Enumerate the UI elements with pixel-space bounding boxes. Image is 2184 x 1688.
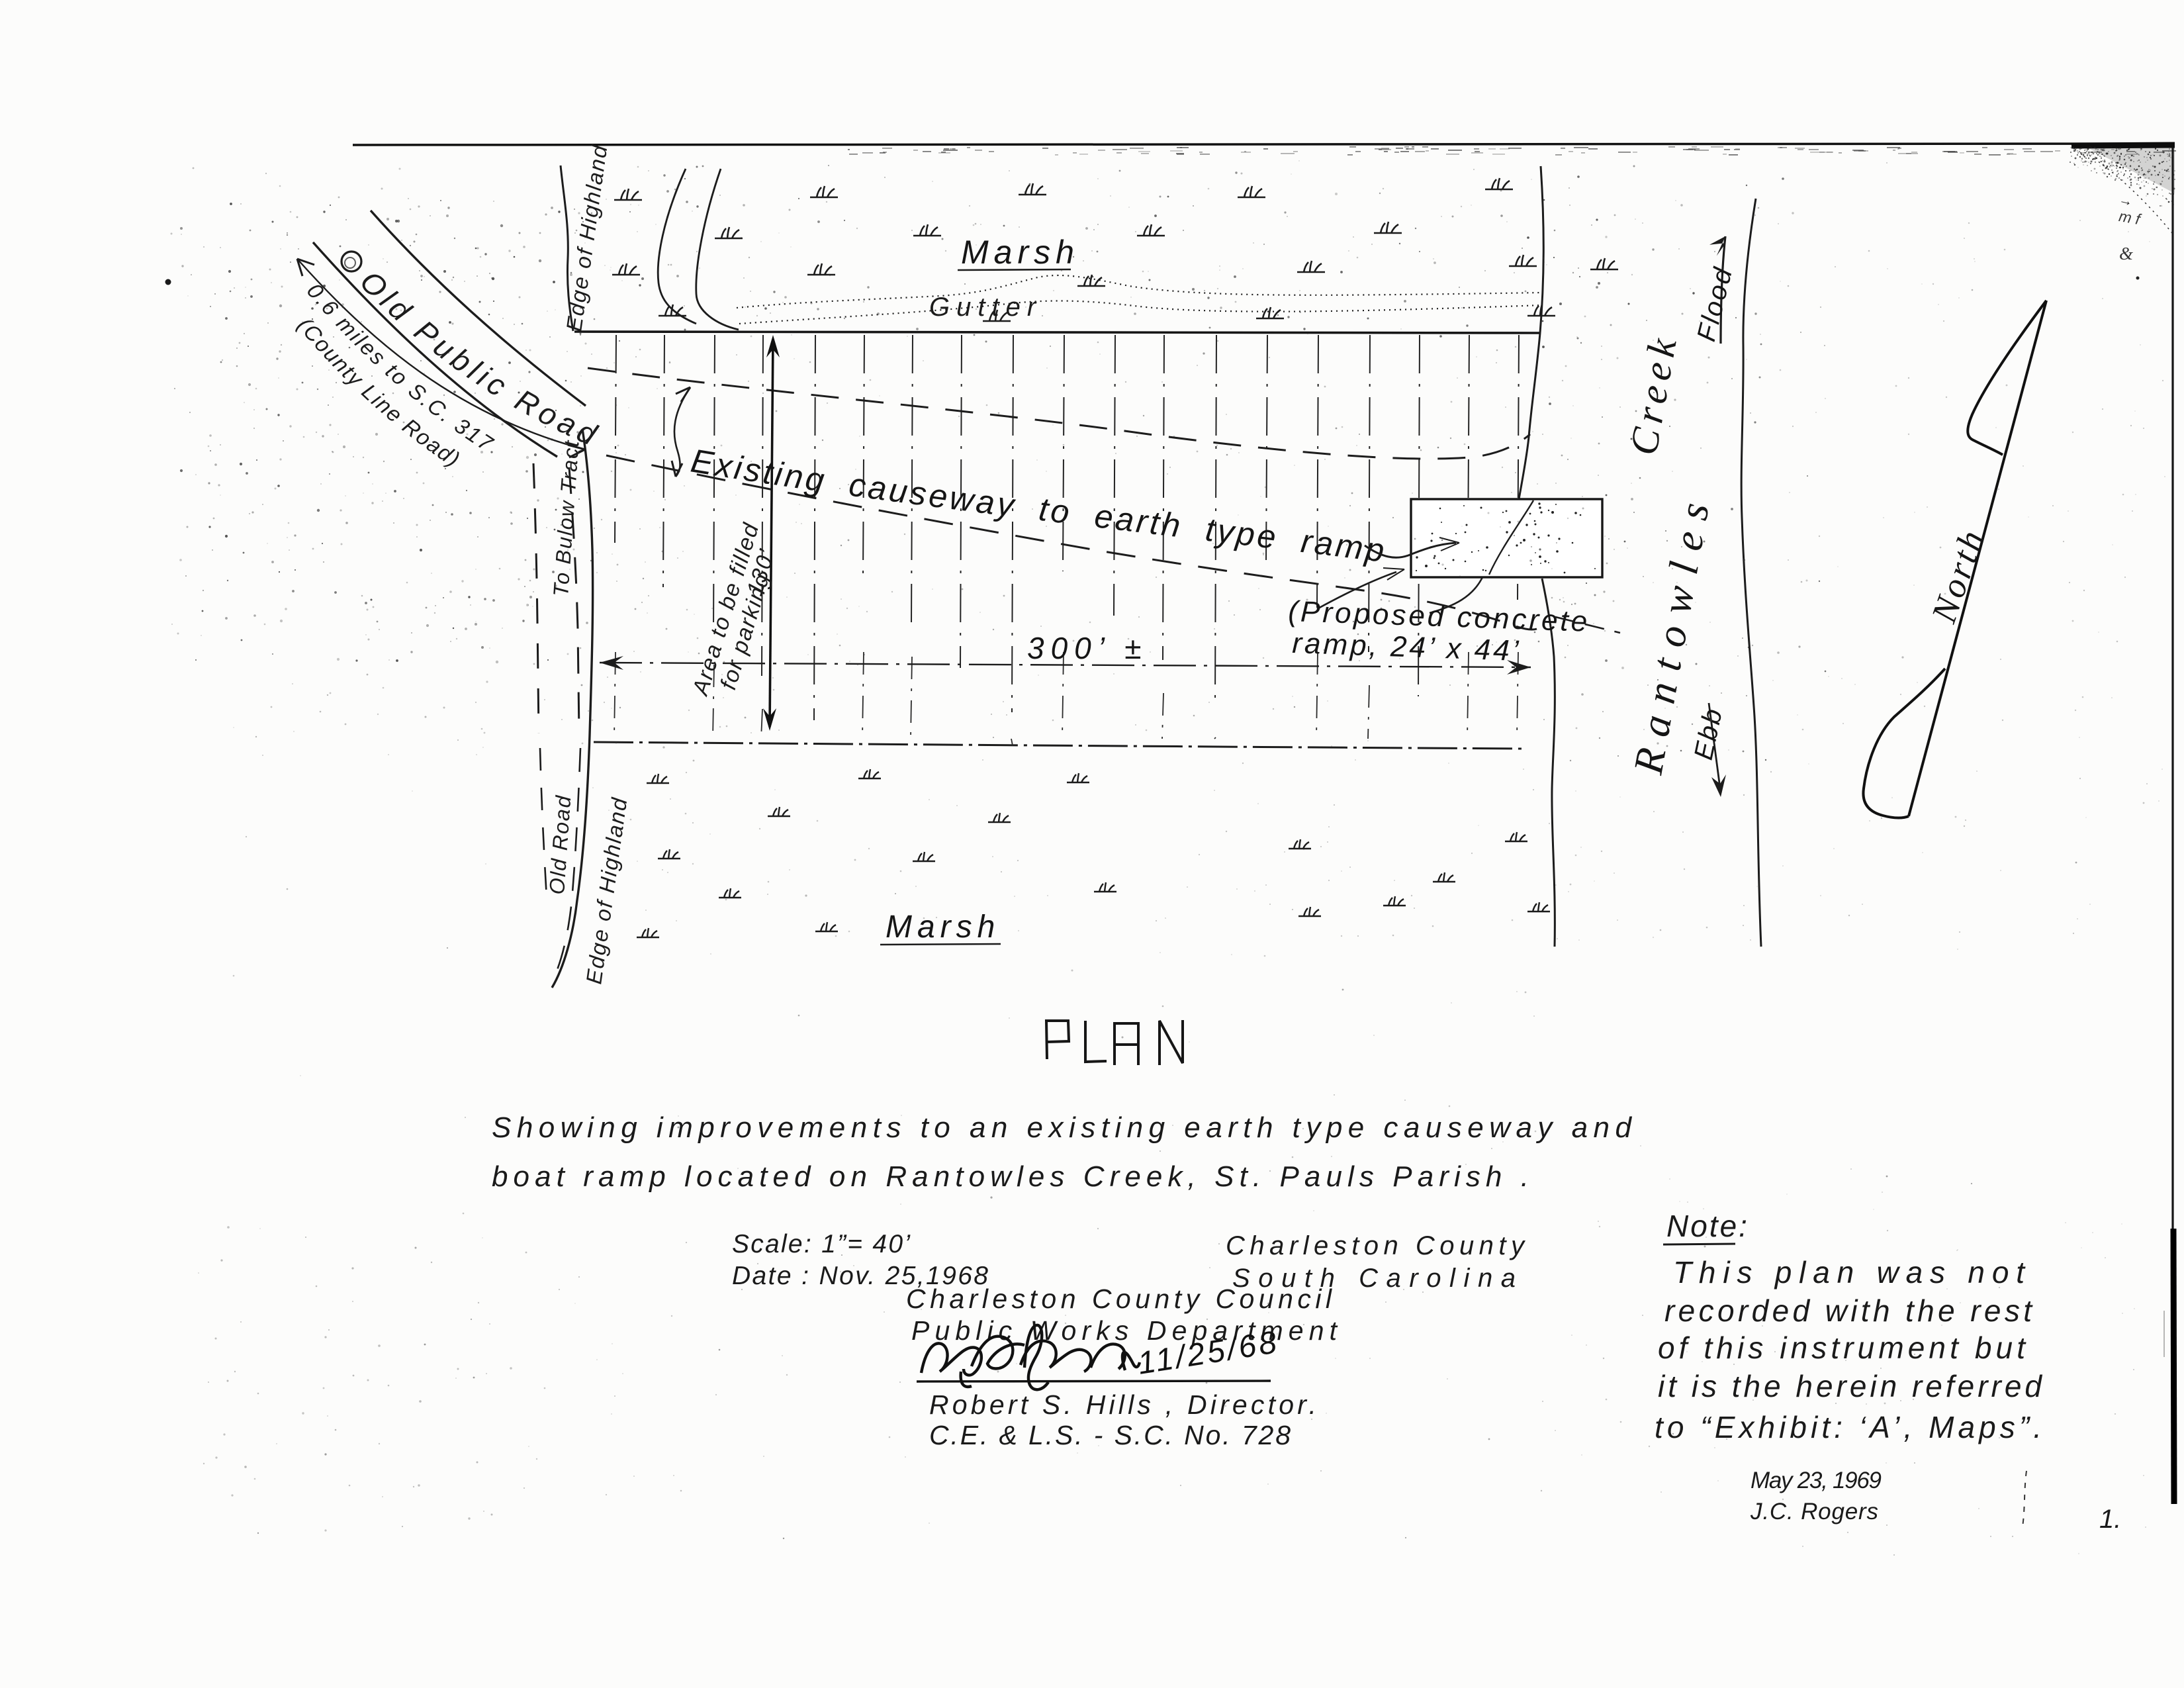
svg-text:recorded with the rest: recorded with the rest [1664, 1293, 2035, 1328]
svg-text:May 23, 1969: May 23, 1969 [1751, 1468, 1883, 1493]
svg-text:Charleston County: Charleston County [1226, 1231, 1527, 1260]
svg-text:Scale: 1”= 40’: Scale: 1”= 40’ [732, 1230, 912, 1258]
svg-text:&: & [2119, 244, 2133, 263]
svg-text:to “Exhibit: ‘A’, Maps”.: to “Exhibit: ‘A’, Maps”. [1655, 1410, 2045, 1444]
svg-text:boat ramp located on Ranto: boat ramp located on Rantowles Creek, St… [492, 1160, 1534, 1193]
svg-text:of this instrument but: of this instrument but [1658, 1331, 2028, 1365]
svg-text:C.E. & L.S. - S.C. No. 728: C.E. & L.S. - S.C. No. 728 [929, 1420, 1293, 1450]
svg-text:Marsh: Marsh [961, 234, 1079, 271]
svg-text:Note:: Note: [1666, 1209, 1749, 1243]
svg-text:300’ ±: 300’ ± [1027, 631, 1148, 665]
svg-text:J.C. Rogers: J.C. Rogers [1750, 1499, 1880, 1524]
svg-text:Marsh: Marsh [886, 910, 1000, 945]
svg-text:1.: 1. [2099, 1505, 2121, 1534]
svg-text:Charleston County Council: Charleston County Council [906, 1284, 1334, 1314]
svg-text:This plan was not: This plan was not [1673, 1255, 2028, 1289]
svg-text:Robert S. Hills , Director.: Robert S. Hills , Director. [929, 1389, 1318, 1420]
svg-text:it is the herein referred: it is the herein referred [1658, 1369, 2045, 1403]
svg-text:Showing improvements to an: Showing improvements to an existing eart… [492, 1111, 1637, 1144]
